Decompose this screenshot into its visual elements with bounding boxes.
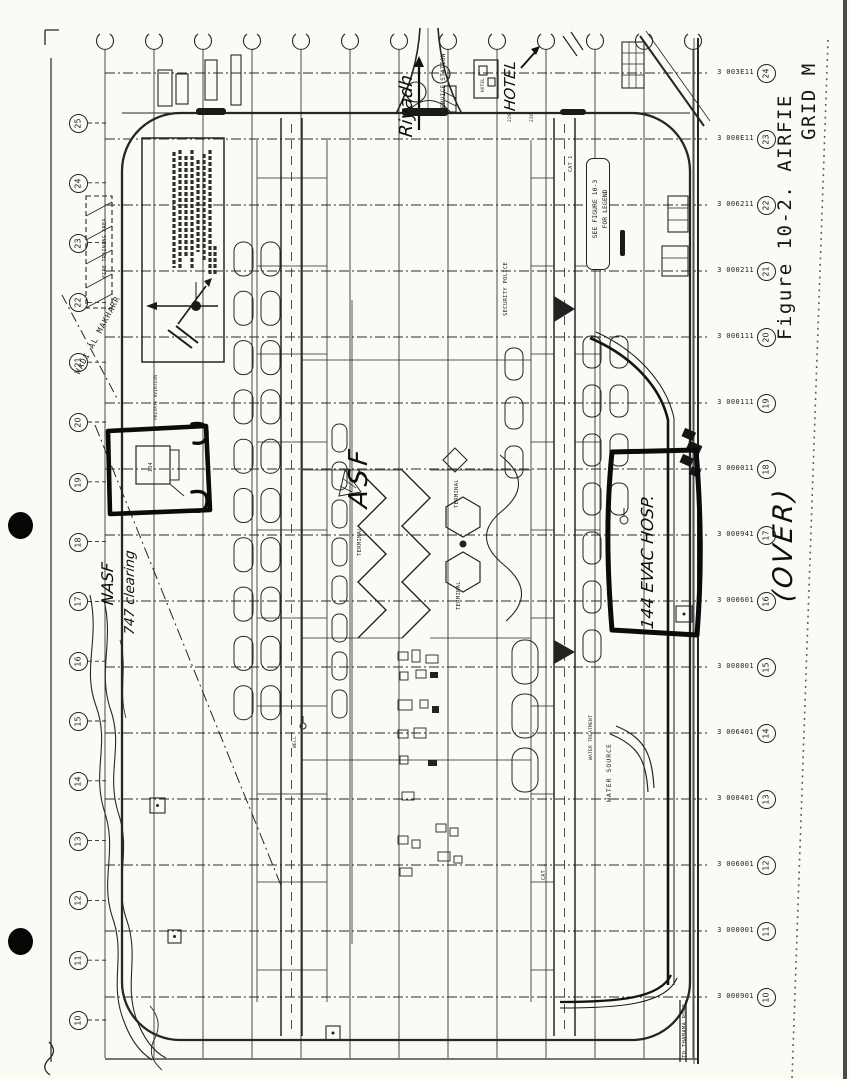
- label-private-aviation: PRIVATE AVIATION: [154, 375, 158, 420]
- aircraft-stand: [261, 636, 280, 670]
- east-buildings: [662, 196, 688, 276]
- aircraft-stand: [261, 439, 280, 473]
- aircraft-stand: [234, 587, 253, 621]
- grid-column-marker: [97, 34, 114, 49]
- label-water-source: WATER SOURCE: [606, 743, 613, 802]
- label-cat-1-b: CAT 1: [542, 863, 547, 880]
- grid-column-marker: [244, 34, 261, 49]
- grid-row-number-right: 12: [757, 856, 776, 875]
- aircraft-stand: [261, 489, 280, 523]
- label-fire-training: FIRE TRAINING AREA: [103, 218, 108, 278]
- figure-caption-line2: GRID M: [800, 62, 819, 140]
- aircraft-stand: [234, 636, 253, 670]
- label-228: 228: [509, 113, 514, 122]
- grid-coordinate-label: 3 003E11: [700, 68, 754, 76]
- label-security-police: SECURITY POLICE: [504, 262, 510, 316]
- grid-column-marker: [194, 34, 211, 49]
- grid-row-number-left: 14: [69, 772, 88, 791]
- annotation-over: (OVER): [770, 485, 797, 603]
- aircraft-stand: [261, 291, 280, 325]
- legend-reference-text: SEE FIGURE 10-3 FOR LEGEND: [590, 156, 610, 262]
- taxiways: [257, 140, 600, 1002]
- label-hotel-small: HOTEL: [481, 78, 485, 92]
- grid-coordinate-label: 3 000801: [700, 662, 754, 670]
- grid-coordinate-label: 3 000941: [700, 530, 754, 538]
- grid-row-number-left: 13: [69, 832, 88, 851]
- figure-caption-line1: Figure 10-2. AIRFIE: [776, 94, 795, 340]
- label-water-treatment: WATER TREATMENT: [590, 715, 595, 760]
- aircraft-stand: [583, 483, 601, 515]
- support-area-dark-buildings: [428, 672, 439, 766]
- aircraft-stand: [583, 532, 601, 564]
- scanned-airfield-grid-map-page: 3 003E11243 000E11233 006211223 00021121…: [0, 0, 850, 1079]
- grid-row-number-left: 20: [69, 413, 88, 432]
- aircraft-stand: [261, 390, 280, 424]
- grid-column-marker: [587, 34, 604, 49]
- grid-coordinate-label: 3 006111: [700, 332, 754, 340]
- aircraft-stand: [261, 538, 280, 572]
- aircraft-stand: [234, 341, 253, 375]
- aircraft-stand: [261, 686, 280, 720]
- annotation-nasf: NASF: [100, 562, 116, 606]
- compass-rose: [146, 278, 218, 348]
- legend-line1: SEE FIGURE 10-3: [590, 156, 600, 262]
- grid-column-marker: [538, 34, 555, 49]
- symbol-squares: [150, 606, 692, 1040]
- aircraft-stand: [583, 434, 601, 466]
- grid-coordinate-label: 3 000001: [700, 926, 754, 934]
- aircraft-stand: [261, 587, 280, 621]
- grid-row-number-right: 14: [757, 724, 776, 743]
- label-service-station: SERVICE STATION: [441, 53, 447, 112]
- label-cat-1-a: CAT 1: [569, 155, 574, 172]
- label-building-134: 134: [149, 462, 154, 472]
- grid-column-marker: [489, 34, 506, 49]
- grid-column-marker: [342, 34, 359, 49]
- grid-coordinate-label: 3 000601: [700, 596, 754, 604]
- aircraft-stand: [505, 348, 523, 380]
- aircraft-stand: [234, 439, 253, 473]
- grid-column-marker: [146, 34, 163, 49]
- annotation-747-clearing: 747 clearing: [124, 550, 138, 636]
- grid-row-number-right: 10: [757, 988, 776, 1007]
- aircraft-stand: [332, 538, 347, 566]
- runway-a: [281, 118, 302, 1036]
- grid-row-number-right: 19: [757, 394, 776, 413]
- grid-row-number-left: 25: [69, 114, 88, 133]
- grid-row-number-right: 15: [757, 658, 776, 677]
- aircraft-stand: [512, 694, 538, 738]
- grid-row-number-left: 18: [69, 533, 88, 552]
- grid-row-number-left: 19: [69, 473, 88, 492]
- aircraft-stand: [332, 690, 347, 718]
- grid-row-number-left: 23: [69, 234, 88, 253]
- annotation-hotel: HOTEL: [503, 60, 518, 112]
- aircraft-stand: [234, 390, 253, 424]
- aircraft-stand: [505, 397, 523, 429]
- label-terminal-3: TERMINAL: [457, 581, 463, 610]
- grid-row-number-left: 10: [69, 1011, 88, 1030]
- wadi-channel: [62, 295, 282, 1070]
- label-226: 226: [531, 113, 536, 122]
- aircraft-stand: [234, 686, 253, 720]
- grid-column-marker: [440, 34, 457, 49]
- grid-coordinate-label: 3 000111: [700, 398, 754, 406]
- annotation-asf: ASF: [346, 445, 372, 509]
- water-source-road: [610, 726, 654, 792]
- annotation-evac-hosp: 144 EVAC HOSP.: [640, 494, 657, 630]
- grid-coordinate-label: 3 000901: [700, 992, 754, 1000]
- grid-row-number-right: 24: [757, 64, 776, 83]
- aircraft-stand: [583, 385, 601, 417]
- grid-coordinate-label: 3 006401: [700, 728, 754, 736]
- grid-coordinate-label: 3 000401: [700, 794, 754, 802]
- aircraft-stand: [610, 385, 628, 417]
- grid-row-number-right: 11: [757, 922, 776, 941]
- grid-coordinate-label: 3 000E11: [700, 134, 754, 142]
- hole-punch: [8, 928, 33, 955]
- grid-row-number-right: 13: [757, 790, 776, 809]
- annotation-riyadh: Riyadh: [398, 74, 416, 138]
- aircraft-stand: [234, 538, 253, 572]
- grid-column-marker: [391, 34, 408, 49]
- aircraft-stand: [332, 652, 347, 680]
- map-drawing-layer: [45, 0, 845, 1079]
- aircraft-stand: [583, 630, 601, 662]
- east-highway: [560, 332, 686, 1062]
- label-terminal-1: TERMINAL: [358, 527, 364, 556]
- aircraft-stand: [234, 489, 253, 523]
- grid-row-number-left: 15: [69, 712, 88, 731]
- hole-punch: [8, 512, 33, 539]
- grid-lines-layer: [88, 34, 707, 1058]
- runway-b: [554, 118, 575, 1036]
- aircraft-stand: [512, 640, 538, 684]
- airfield-map-artwork: [0, 0, 850, 1079]
- aircraft-stand: [234, 291, 253, 325]
- grid-coordinate-label: 3 000211: [700, 266, 754, 274]
- annotation-arrows: [414, 46, 540, 130]
- label-well: WELL: [294, 736, 299, 748]
- grid-column-marker: [293, 34, 310, 49]
- grid-row-number-right: 18: [757, 460, 776, 479]
- grid-coordinate-label: 3 006001: [700, 860, 754, 868]
- label-to-road: TO THAMAMA ROAD: [683, 1004, 689, 1058]
- aircraft-stand: [512, 748, 538, 792]
- grid-coordinate-label: 3 006211: [700, 200, 754, 208]
- aircraft-stand: [583, 581, 601, 613]
- legend-line2: FOR LEGEND: [600, 156, 610, 262]
- grid-row-number-left: 24: [69, 174, 88, 193]
- aircraft-stand: [261, 341, 280, 375]
- fire-training-area: [86, 196, 112, 308]
- aircraft-stand: [332, 576, 347, 604]
- grid-coordinate-label: 3 000011: [700, 464, 754, 472]
- aircraft-stand: [610, 483, 628, 515]
- label-terminal-2: TERMINAL: [455, 479, 461, 508]
